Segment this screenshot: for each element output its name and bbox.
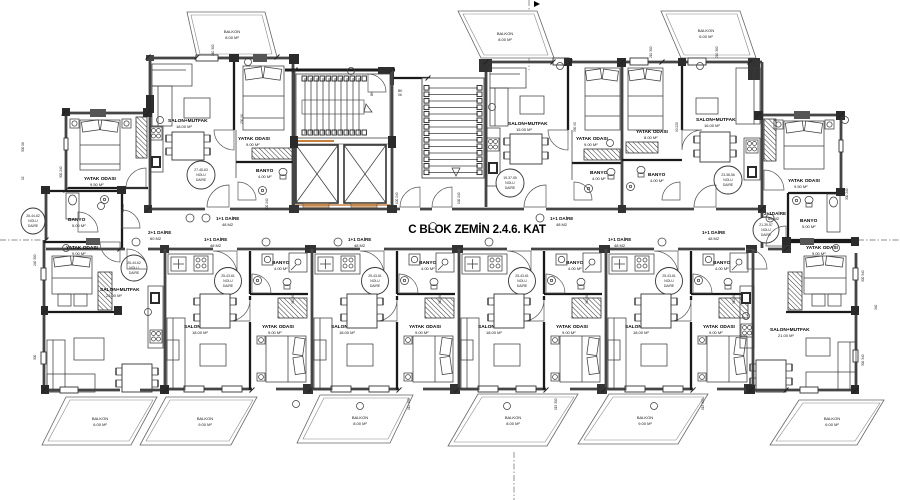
svg-text:300 240: 300 240 bbox=[59, 166, 63, 178]
svg-text:48 M2: 48 M2 bbox=[222, 222, 234, 227]
svg-text:NOLU: NOLU bbox=[129, 266, 139, 270]
svg-text:100 240: 100 240 bbox=[457, 192, 461, 204]
svg-text:210 300: 210 300 bbox=[715, 46, 719, 58]
svg-text:4.00 M²: 4.00 M² bbox=[592, 176, 606, 181]
svg-text:015 300: 015 300 bbox=[407, 398, 411, 410]
svg-text:18.00 M²: 18.00 M² bbox=[192, 330, 208, 335]
svg-text:4.00 M²: 4.00 M² bbox=[274, 266, 288, 271]
svg-text:DAİRE: DAİRE bbox=[723, 182, 734, 187]
svg-text:NOLU: NOLU bbox=[761, 228, 771, 232]
svg-text:NOLU: NOLU bbox=[196, 173, 206, 177]
svg-text:9.00 M²: 9.00 M² bbox=[584, 142, 598, 147]
svg-text:9.00 M²: 9.00 M² bbox=[268, 330, 282, 335]
svg-text:NOLU: NOLU bbox=[223, 279, 233, 283]
svg-text:21.00 M²: 21.00 M² bbox=[778, 333, 794, 338]
svg-text:210 300: 210 300 bbox=[649, 46, 653, 58]
svg-text:240 300: 240 300 bbox=[33, 254, 37, 266]
svg-text:330 90: 330 90 bbox=[573, 122, 577, 132]
svg-text:BALKON: BALKON bbox=[352, 415, 368, 420]
svg-text:BALKON: BALKON bbox=[497, 31, 513, 36]
svg-text:BALKON: BALKON bbox=[224, 29, 240, 34]
svg-text:100 240: 100 240 bbox=[395, 192, 399, 204]
svg-text:5.00 M²: 5.00 M² bbox=[72, 223, 86, 228]
svg-text:6.00 M²: 6.00 M² bbox=[825, 422, 839, 427]
svg-text:310 90: 310 90 bbox=[585, 294, 589, 304]
svg-text:2+1 DAİRE: 2+1 DAİRE bbox=[148, 229, 171, 235]
svg-text:DAİRE: DAİRE bbox=[129, 270, 140, 275]
svg-text:BALKON: BALKON bbox=[824, 416, 840, 421]
svg-text:9.00 M²: 9.00 M² bbox=[246, 142, 260, 147]
svg-text:25-43-61: 25-43-61 bbox=[221, 274, 235, 278]
svg-text:DAİRE: DAİRE bbox=[761, 232, 772, 237]
svg-text:C BLOK ZEMİN 2.4.6. KAT: C BLOK ZEMİN 2.4.6. KAT bbox=[408, 223, 546, 236]
svg-text:1+1 DAİRE: 1+1 DAİRE bbox=[550, 215, 573, 221]
svg-text:02: 02 bbox=[21, 176, 25, 180]
svg-text:23.00 M²: 23.00 M² bbox=[106, 293, 122, 298]
svg-text:9.00 M²: 9.00 M² bbox=[638, 421, 652, 426]
svg-text:1+1 DAİRE: 1+1 DAİRE bbox=[216, 215, 239, 221]
svg-text:19-37-55: 19-37-55 bbox=[503, 176, 517, 180]
svg-text:9.00 M²: 9.00 M² bbox=[812, 251, 826, 256]
svg-text:8.00 M²: 8.00 M² bbox=[506, 421, 520, 426]
svg-text:230 90: 230 90 bbox=[240, 114, 244, 124]
svg-text:26-44-62: 26-44-62 bbox=[127, 261, 141, 265]
svg-text:6.00 M²: 6.00 M² bbox=[699, 34, 713, 39]
svg-text:21-39-57: 21-39-57 bbox=[759, 223, 773, 227]
svg-text:06: 06 bbox=[398, 93, 402, 97]
svg-text:80 02: 80 02 bbox=[121, 204, 125, 212]
svg-text:DAİRE: DAİRE bbox=[223, 283, 234, 288]
svg-text:4.00 M²: 4.00 M² bbox=[258, 174, 272, 179]
svg-text:15.00 M²: 15.00 M² bbox=[516, 127, 532, 132]
svg-text:48 M2: 48 M2 bbox=[708, 236, 720, 241]
svg-text:015 300: 015 300 bbox=[701, 398, 705, 410]
svg-text:1+1 DAİRE: 1+1 DAİRE bbox=[702, 229, 725, 235]
svg-text:300 340: 300 340 bbox=[861, 270, 865, 282]
svg-text:300 340: 300 340 bbox=[861, 354, 865, 366]
svg-text:1+1 DAİRE: 1+1 DAİRE bbox=[204, 236, 227, 242]
svg-text:9.00 M²: 9.00 M² bbox=[198, 422, 212, 427]
svg-text:6.00 M²: 6.00 M² bbox=[93, 422, 107, 427]
svg-text:1+1 DAİRE: 1+1 DAİRE bbox=[608, 236, 631, 242]
svg-text:100 240: 100 240 bbox=[265, 198, 269, 210]
svg-text:NOLU: NOLU bbox=[28, 219, 38, 223]
svg-text:48 M2: 48 M2 bbox=[556, 222, 568, 227]
svg-text:DAİRE: DAİRE bbox=[196, 177, 207, 182]
svg-text:310 90: 310 90 bbox=[732, 294, 736, 304]
svg-text:210 300: 210 300 bbox=[211, 44, 215, 56]
svg-text:9.00 M²: 9.00 M² bbox=[72, 251, 86, 256]
svg-text:4.00 M²: 4.00 M² bbox=[650, 178, 664, 183]
svg-text:DAİRE: DAİRE bbox=[28, 223, 39, 228]
svg-text:48 M2: 48 M2 bbox=[210, 243, 222, 248]
svg-text:8.00 M²: 8.00 M² bbox=[498, 37, 512, 42]
svg-text:300: 300 bbox=[33, 354, 37, 360]
svg-text:310 90: 310 90 bbox=[291, 294, 295, 304]
svg-text:48 M2: 48 M2 bbox=[614, 243, 626, 248]
svg-text:DAİRE: DAİRE bbox=[505, 185, 516, 190]
svg-text:BALKON: BALKON bbox=[698, 28, 714, 33]
svg-text:300 06: 300 06 bbox=[21, 142, 25, 152]
svg-text:1+1 DAİRE: 1+1 DAİRE bbox=[348, 236, 371, 242]
svg-text:300 240: 300 240 bbox=[845, 188, 849, 200]
svg-text:8.00 M²: 8.00 M² bbox=[353, 421, 367, 426]
svg-text:90 220: 90 220 bbox=[675, 122, 679, 132]
svg-text:9.50 M²: 9.50 M² bbox=[90, 182, 104, 187]
svg-text:BALKON: BALKON bbox=[505, 415, 521, 420]
svg-text:60 M2: 60 M2 bbox=[150, 236, 162, 241]
svg-text:015 300: 015 300 bbox=[554, 398, 558, 410]
svg-text:NOLU: NOLU bbox=[505, 181, 515, 185]
svg-text:NOLU: NOLU bbox=[723, 178, 733, 182]
svg-text:9.50 M²: 9.50 M² bbox=[794, 184, 808, 189]
svg-text:BALKON: BALKON bbox=[92, 416, 108, 421]
svg-text:18.00 M²: 18.00 M² bbox=[176, 124, 192, 129]
svg-text:310 90: 310 90 bbox=[438, 294, 442, 304]
svg-text:23-38-56: 23-38-56 bbox=[721, 173, 735, 177]
svg-text:16.00 M²: 16.00 M² bbox=[704, 123, 720, 128]
svg-text:BALKON: BALKON bbox=[637, 415, 653, 420]
svg-text:5.00 M²: 5.00 M² bbox=[802, 224, 816, 229]
svg-text:8.00 M²: 8.00 M² bbox=[225, 35, 239, 40]
svg-text:8.00 M²: 8.00 M² bbox=[644, 135, 658, 140]
svg-text:26-44-62: 26-44-62 bbox=[26, 214, 40, 218]
svg-text:BALKON: BALKON bbox=[197, 416, 213, 421]
svg-text:48 M2: 48 M2 bbox=[354, 243, 366, 248]
svg-text:340: 340 bbox=[874, 304, 878, 310]
svg-text:27-45-63: 27-45-63 bbox=[194, 168, 208, 172]
